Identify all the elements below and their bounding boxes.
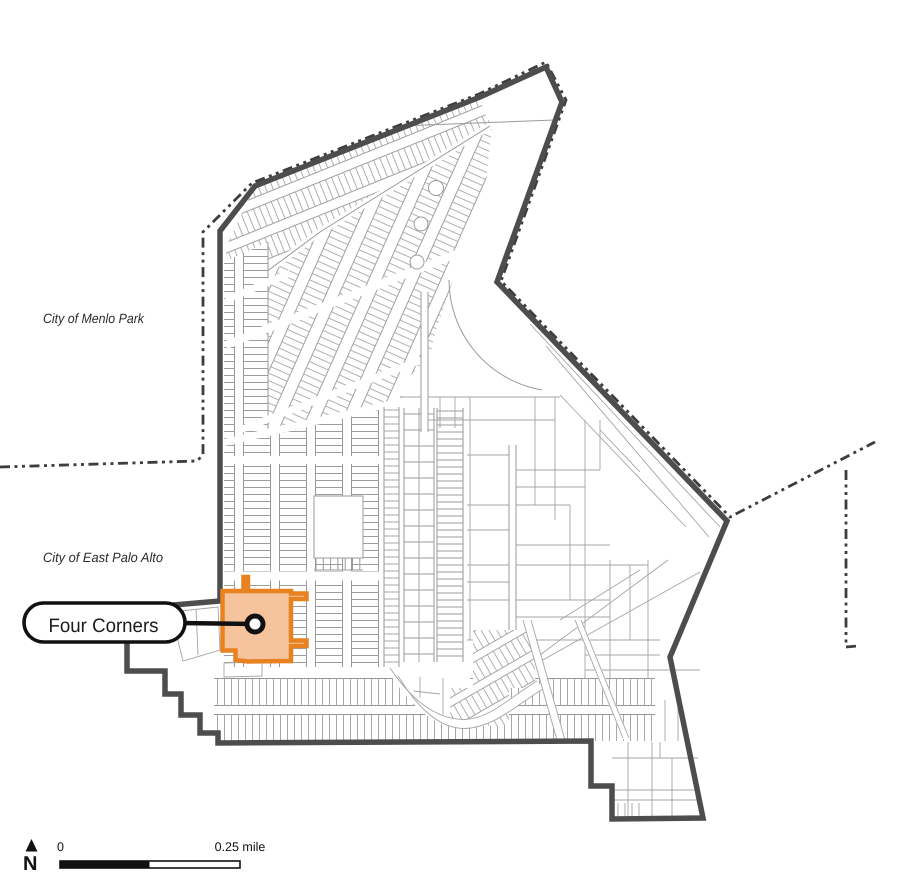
svg-text:0: 0 bbox=[57, 840, 64, 854]
svg-text:N: N bbox=[23, 853, 37, 875]
svg-text:0.25 mile: 0.25 mile bbox=[215, 840, 266, 854]
svg-text:City of East Palo Alto: City of East Palo Alto bbox=[43, 550, 163, 565]
svg-text:Four Corners: Four Corners bbox=[49, 615, 159, 637]
svg-text:City of Menlo Park: City of Menlo Park bbox=[43, 311, 145, 326]
